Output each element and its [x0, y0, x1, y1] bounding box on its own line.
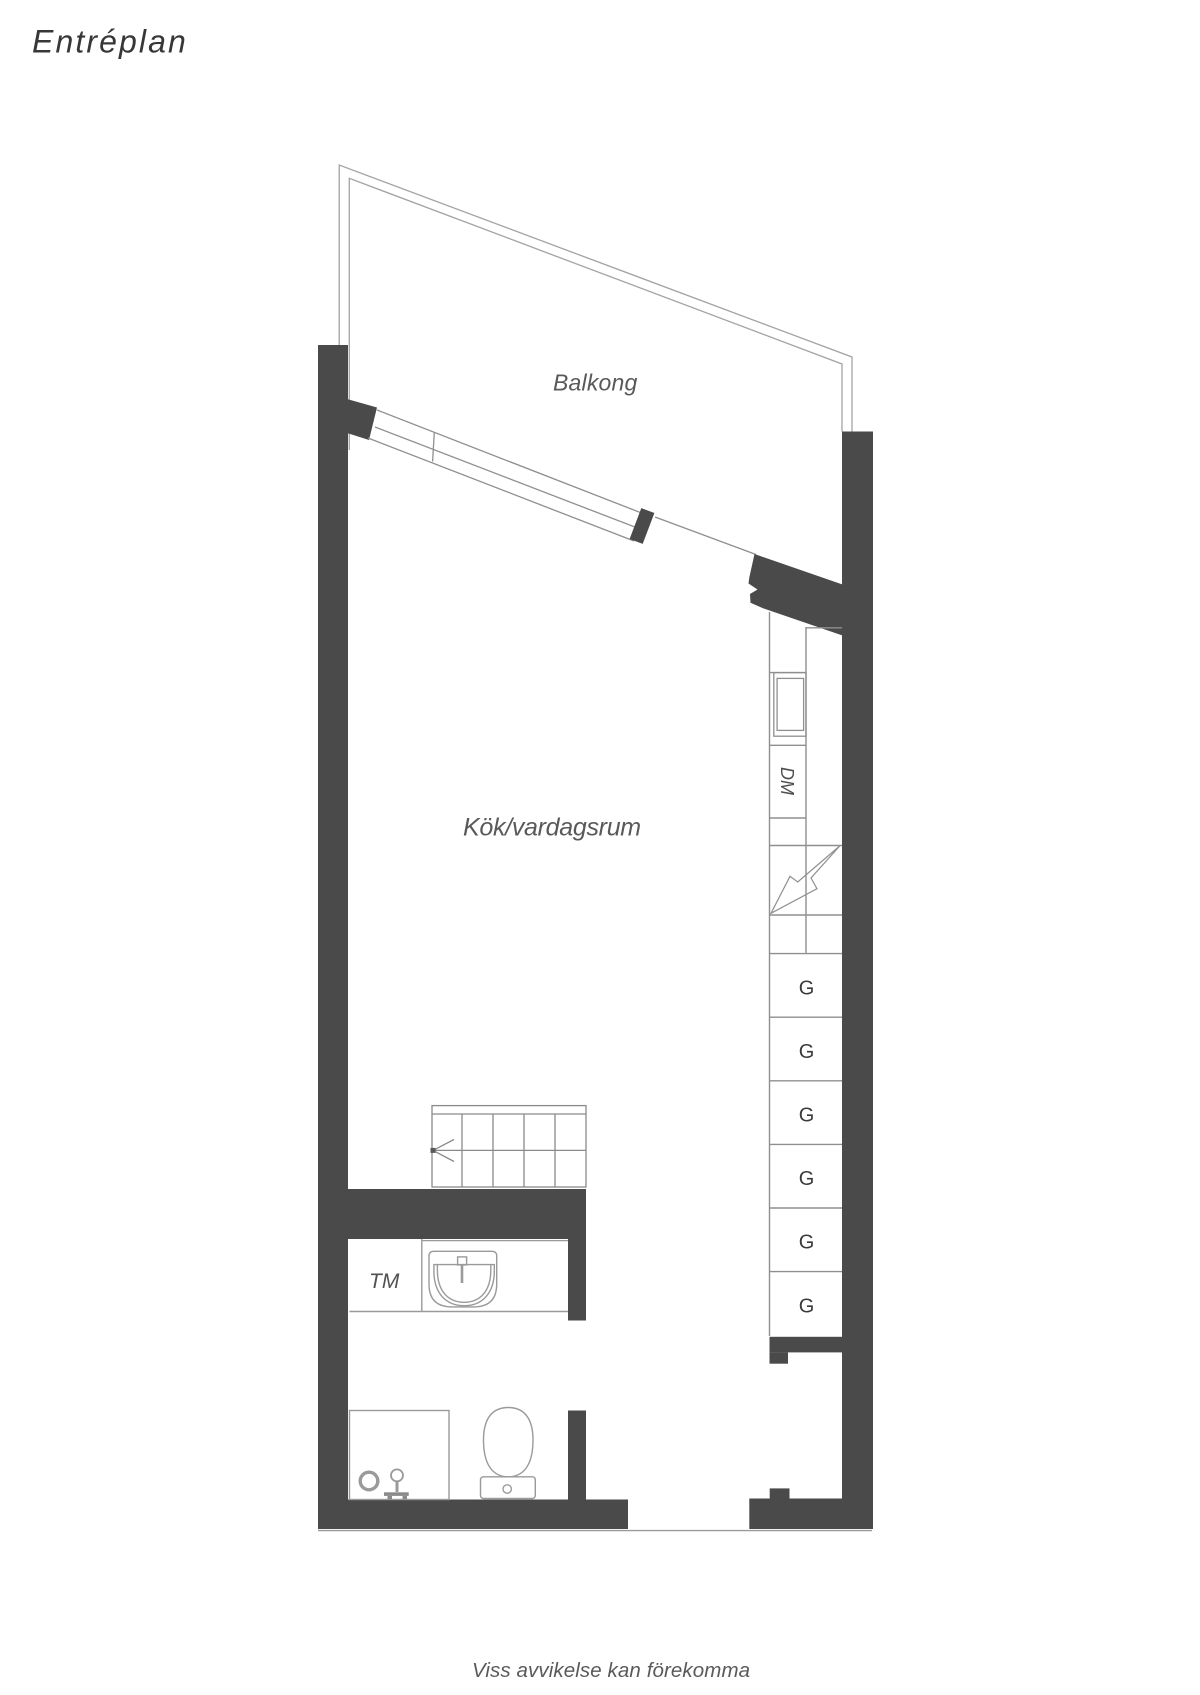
svg-text:G: G	[799, 977, 815, 999]
svg-text:Entréplan: Entréplan	[32, 24, 188, 60]
svg-text:Viss avvikelse kan förekomma: Viss avvikelse kan förekomma	[472, 1659, 750, 1682]
svg-text:G: G	[799, 1295, 815, 1317]
svg-text:G: G	[799, 1232, 815, 1254]
svg-text:G: G	[799, 1168, 815, 1190]
svg-text:TM: TM	[369, 1270, 400, 1293]
svg-text:G: G	[799, 1105, 815, 1127]
svg-text:G: G	[799, 1041, 815, 1063]
svg-text:Balkong: Balkong	[553, 370, 638, 396]
svg-text:Kök/vardagsrum: Kök/vardagsrum	[463, 814, 641, 842]
svg-text:DM: DM	[777, 767, 797, 795]
